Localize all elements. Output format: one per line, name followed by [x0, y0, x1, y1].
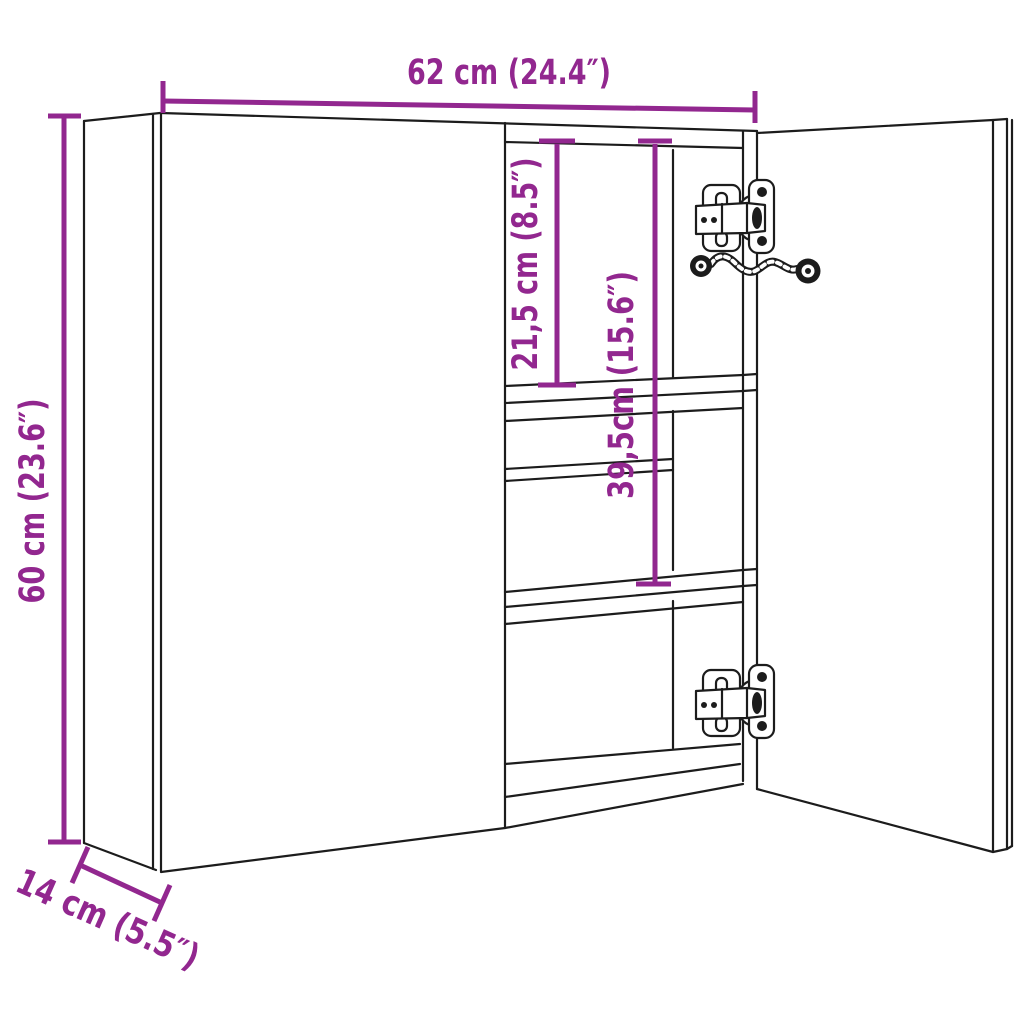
dimension-diagram: 62 cm (24.4″) 60 cm (23.6″) 21,5 cm (8.5… [0, 0, 1024, 1024]
power-cable-icon [690, 255, 821, 284]
bottom-hinge-icon [696, 665, 774, 738]
shelf-lower [505, 569, 757, 624]
width-dimension-label: 62 cm (24.4″) [407, 53, 611, 93]
dimension-labels: 62 cm (24.4″) 60 cm (23.6″) 21,5 cm (8.5… [10, 53, 642, 978]
cabinet-dimension-drawing: 62 cm (24.4″) 60 cm (23.6″) 21,5 cm (8.5… [0, 0, 1024, 1024]
shelf-section-dimension-label: 39,5cm (15.6″) [602, 271, 642, 499]
cabinet-line-drawing [84, 113, 1012, 872]
top-hinge-icon [696, 180, 774, 253]
left-side-panel [84, 113, 161, 871]
height-dimension-label: 60 cm (23.6″) [13, 399, 53, 604]
upper-compartment-dimension-label: 21,5 cm (8.5″) [506, 158, 546, 371]
right-mirror-door [757, 119, 1012, 852]
left-mirror-door [161, 113, 757, 872]
glass-shelf [505, 459, 673, 481]
bottom-board [505, 744, 740, 797]
